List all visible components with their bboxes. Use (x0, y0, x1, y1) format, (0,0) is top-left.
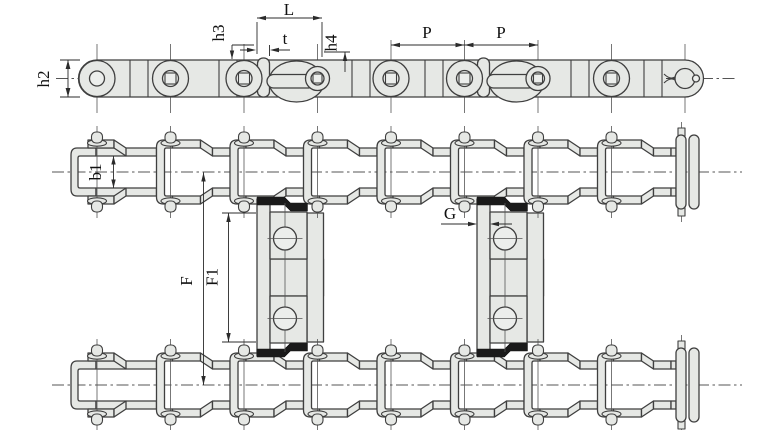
side-view (56, 40, 736, 113)
dim-label-F1: F1 (203, 268, 222, 286)
dimension-L: L (257, 0, 322, 57)
chain-technical-drawing: h2 L t h3 h4 (0, 0, 780, 430)
plan-view (52, 122, 742, 430)
cross-attachment-2 (477, 197, 544, 357)
dimension-t: t (240, 29, 290, 56)
dim-label-G: G (444, 204, 456, 223)
dimension-h3: h3 (209, 25, 254, 60)
bushing-pin (594, 61, 630, 97)
bushing-pin (373, 61, 409, 97)
attachment-pin (526, 67, 550, 91)
dim-label-b1: b1 (86, 164, 105, 181)
bushing-pin (226, 61, 262, 97)
dim-label-h3: h3 (209, 25, 228, 42)
plain-pin (79, 61, 115, 97)
dimension-p-right: P (465, 23, 539, 47)
dim-label-p-right: P (496, 23, 505, 42)
dimension-F1: F1 (203, 213, 257, 342)
dimension-p-left: P (391, 23, 465, 47)
dim-label-t: t (283, 29, 288, 48)
dim-label-h2: h2 (34, 71, 53, 88)
cross-attachment-1 (257, 197, 324, 357)
bushing-pin (447, 61, 483, 97)
dim-label-F: F (177, 276, 196, 285)
drawing-svg: h2 L t h3 h4 (0, 0, 780, 430)
dim-label-L: L (284, 0, 294, 19)
attachment-pin (306, 67, 330, 91)
bottom-strand-pins (88, 339, 622, 430)
bushing-pin (153, 61, 189, 97)
dim-label-p-left: P (422, 23, 431, 42)
dim-label-h4: h4 (322, 34, 341, 52)
